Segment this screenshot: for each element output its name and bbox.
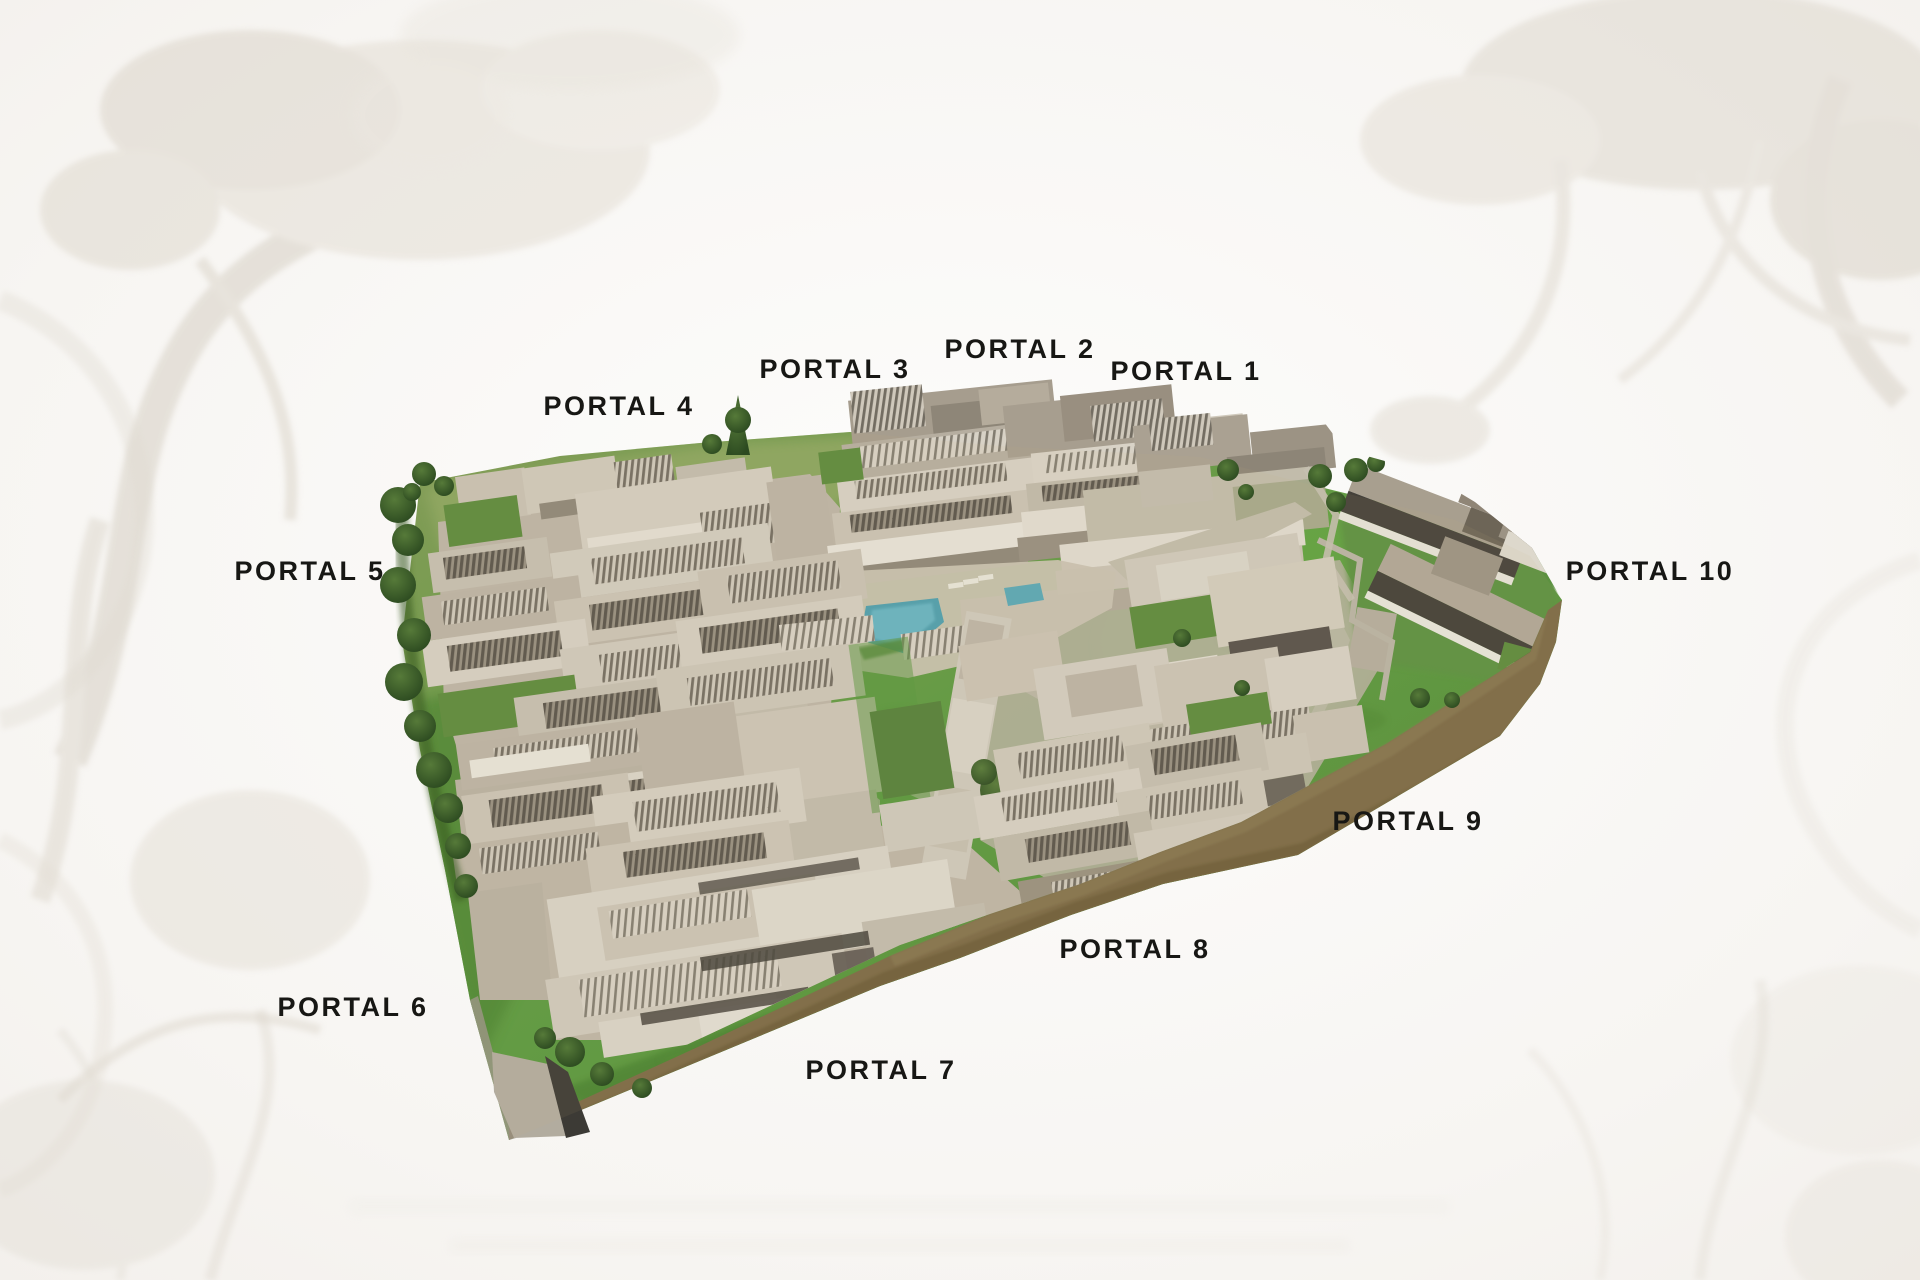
- svg-text:PORTAL 8: PORTAL 8: [1059, 934, 1210, 964]
- svg-text:PORTAL 6: PORTAL 6: [277, 992, 428, 1022]
- svg-text:PORTAL 9: PORTAL 9: [1332, 806, 1483, 836]
- svg-text:PORTAL 1: PORTAL 1: [1110, 356, 1261, 386]
- svg-text:PORTAL 4: PORTAL 4: [543, 391, 694, 421]
- svg-text:PORTAL 7: PORTAL 7: [805, 1055, 956, 1085]
- svg-text:PORTAL 5: PORTAL 5: [234, 556, 385, 586]
- svg-text:PORTAL 3: PORTAL 3: [759, 354, 910, 384]
- svg-text:PORTAL 2: PORTAL 2: [944, 334, 1095, 364]
- svg-text:PORTAL 10: PORTAL 10: [1566, 556, 1735, 586]
